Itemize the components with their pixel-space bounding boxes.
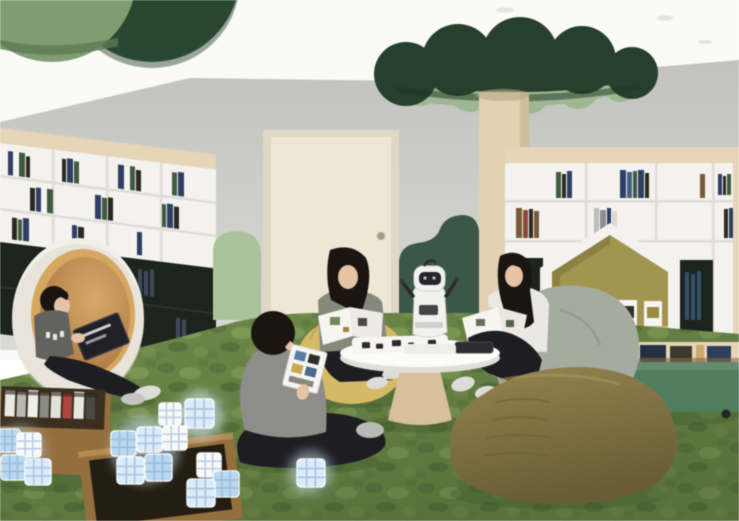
- library-rendering: [0, 0, 739, 521]
- scene: [0, 0, 739, 521]
- sage-wall-panel: [213, 231, 261, 320]
- caster-wheel: [722, 410, 731, 419]
- right-lower-cabinet-right: [680, 260, 713, 334]
- block-books: [4, 389, 97, 419]
- tablet-on-table: [455, 342, 493, 353]
- door-knob: [377, 232, 385, 240]
